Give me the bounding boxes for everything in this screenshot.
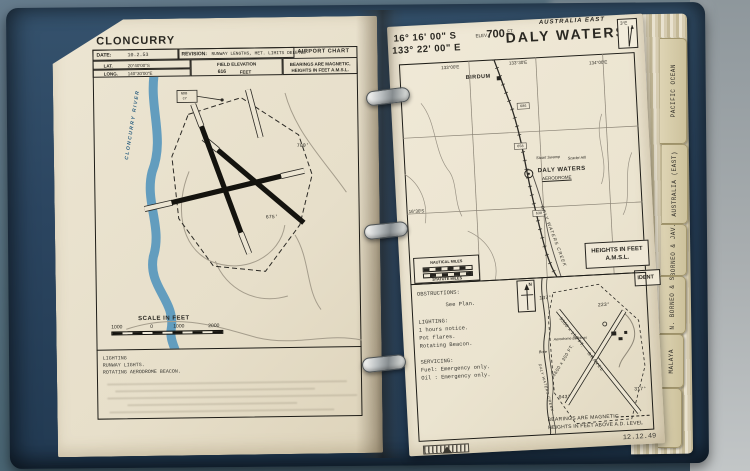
map-scale-box: NAUTICAL MILES STATUTE MILES [413,254,480,283]
tab-australia-east[interactable]: AUSTRALIA (EAST) [662,144,688,224]
spot-686: 686 [520,104,527,109]
revision-label: REVISION: [181,51,207,57]
right-page-daly-waters: AUSTRALIA EAST DALY WATERS 16° 16' 00" S… [387,14,665,457]
revision-value: RUNWAY LENGTHS, MET. LIMITS DELETED [211,51,306,58]
tab-label: AUSTRALIA (EAST) [671,151,678,217]
ndb-label-line2: CY [183,97,187,101]
long-value: 140°30'00"E [128,71,153,77]
meridian-label-3: 134°00'E [589,60,607,66]
birdum-symbol [497,76,501,80]
tab-malaya[interactable]: MALAYA [659,334,684,388]
bearing-sw: 043° [558,394,570,401]
variation-value: 3°E [620,20,628,26]
stamp-triangle-icon [442,446,452,454]
tab-label: BORNEO & JAV. [670,224,677,276]
tab-borneo-java[interactable]: BORNEO & JAV. [661,224,687,276]
spot-height-675: 675' [266,214,278,220]
scale-tick-0: 1000 [111,324,122,330]
bore-label: Bore [539,349,547,354]
tab-pacific-ocean[interactable]: PACIFIC OCEAN [660,38,687,144]
date-label: DATE: [96,52,111,58]
lat-label: LAT. [104,63,113,69]
heights-note: HEIGHTS IN FEET A.M.S.L. [284,67,357,74]
thin-runway-strips [143,89,305,255]
elevation-label: FIELD ELEVATION [192,61,282,68]
elevation-value: 616 [218,69,226,75]
scale-tick-3: 2000 [208,323,219,329]
lat-value: 20°40'00"S [128,62,150,68]
cloncurry-river [149,74,177,350]
aerodrome-symbol [525,170,533,178]
date-value: 10.2.53 [127,52,148,58]
lighting-heading: LIGHTING [103,355,127,361]
elevation-unit: FEET [240,69,252,75]
plan-buildings [611,331,627,341]
windsock-symbol [603,322,607,326]
tab-label: PACIFIC OCEAN [670,64,677,117]
lighting-line1: RUNWAY LIGHTS. [103,362,145,369]
bearing-se: 317° [634,386,646,393]
north-label: N [528,282,532,288]
elev-unit: FT. [507,28,514,34]
elevation-cell: FIELD ELEVATION 616 FEET [191,58,283,76]
left-page-cloncurry: CLONCURRY DATE: 10.2.53 REVISION: RUNWAY… [52,16,383,457]
daly-waters-title: DALY WATERS [505,23,627,45]
bearing-ne: 223° [598,302,610,309]
sealed-runways [170,125,303,234]
variation-box: 3°E [617,18,639,49]
bearings-note: BEARINGS ARE MAGNETIC, [284,61,357,68]
tab-br-n-borneo-sar[interactable]: BR. N. BORNEO & SAR. [660,276,686,334]
birdum-label: BIRDUM [466,74,491,82]
spot-638: 638 [536,212,543,217]
spot-height-700: 700' [297,143,309,149]
parallel-label: 16°30'S [408,208,424,214]
photo-of-chart-binder: PACIFIC OCEAN AUSTRALIA (EAST) BORNEO & … [0,0,750,471]
hill-label: Scarlet Hill [568,155,587,161]
heights-amsl-box: HEIGHTS IN FEET A.M.S.L. [584,240,649,269]
tab-label: BR. N. BORNEO & SAR. [669,276,676,334]
lighting-line2: ROTATING AERODROME BEACON. [103,369,181,376]
ndb-label-line1: NDB [181,92,188,96]
long-label: LONG. [104,71,118,77]
airport-chart-label: AIRPORT CHART [297,48,349,55]
spot-658: 658 [517,145,524,150]
chart-date: 12.12.49 [623,432,657,442]
scale-title: SCALE IN FEET [138,315,190,323]
meridian-label-2: 133°30'E [509,60,527,66]
tab-label: MALAYA [668,349,675,374]
bearing-nw: 137° [539,295,551,302]
meridian-label-1: 133°00'E [441,64,459,70]
scale-tick-2: 1000 [173,323,184,329]
cloncurry-page-title: CLONCURRY [96,35,175,48]
bearings-cell: BEARINGS ARE MAGNETIC, HEIGHTS IN FEET A… [283,57,358,75]
publisher-stamp [423,443,469,454]
scale-tick-1: 0 [150,324,153,330]
elev-value: 700 [486,28,505,41]
